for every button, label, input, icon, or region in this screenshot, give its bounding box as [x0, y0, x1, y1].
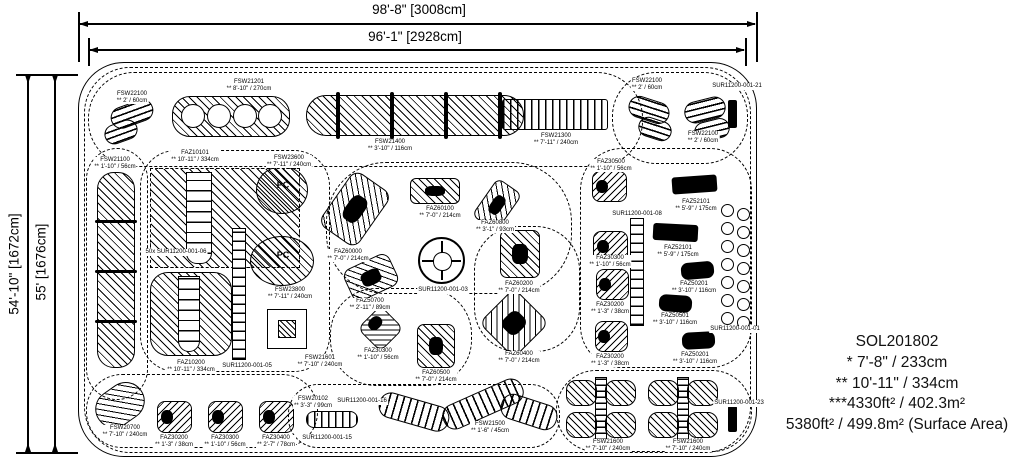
label-faz30400: FAZ30400** 2'-7" / 78cm	[256, 435, 296, 448]
label-faz30200: FAZ30200** 1'-3" / 38cm	[590, 354, 630, 367]
label-faz30300: FAZ30300** 1'-10" / 56cm	[588, 255, 631, 268]
label-50x-sur11200-001-06: 50x SUR11200-001-06	[145, 249, 208, 256]
surface-area-note: 5380ft² / 499.8m² (Surface Area)	[772, 415, 1022, 436]
dim-left-inner-label: 55' [1676cm]	[34, 219, 49, 306]
label-faz60100: FAZ60100** 7'-0" / 214cm	[418, 206, 461, 219]
label-faz30300: FAZ30300** 1'-10" / 56cm	[356, 348, 399, 361]
label-faz30200: FAZ30200** 1'-3" / 38cm	[154, 435, 194, 448]
label-fsw23600: FSW23600** 7'-11" / 240cm	[266, 155, 312, 168]
dim-left-outer-label: 54'-10" [1672cm]	[7, 208, 22, 319]
label-faz50700: FAZ50700** 2'-11" / 89cm	[349, 298, 392, 311]
label-fsw22100: FSW22100** 2' / 60cm	[687, 131, 720, 144]
label-sur11200-001-15: SUR11200-001-15	[301, 435, 353, 442]
playground-plan-drawing: 98'-8" [3008cm] 96'-1" [2928cm] 54'-10" …	[0, 0, 1024, 465]
label-fsw23800: FSW23800** 7'-11" / 240cm	[267, 287, 313, 300]
label-faz50201: FAZ50201** 3'-10" / 116cm	[671, 281, 717, 294]
label-fsw20700: FSW20700** 7'-10" / 240cm	[102, 425, 149, 438]
label-fsw22100: FSW22100** 2' / 60cm	[631, 78, 664, 91]
label-fsw22100: FSW22100** 2' / 60cm	[116, 91, 149, 104]
dim-top-inner-label: 96'-1" [2928cm]	[363, 29, 467, 44]
label-faz30300: FAZ30300** 1'-10" / 56cm	[203, 435, 246, 448]
note-star2: ** 10'-11" / 334cm	[772, 374, 1022, 395]
label-sur11200-001-05: SUR11200-001-05	[221, 363, 273, 370]
label-fsw21201: FSW21201** 8'-10" / 270cm	[226, 79, 273, 92]
label-faz60000: FAZ60000** 7'-0" / 214cm	[326, 249, 369, 262]
label-fsw21300: FSW21300** 7'-11" / 240cm	[533, 133, 579, 146]
label-faz60500: FAZ60500** 7'-0" / 214cm	[414, 370, 457, 383]
label-faz10200: FAZ10200** 10'-11" / 334cm	[166, 360, 216, 373]
label-fsw21500: FSW21500** 1'-6" / 45cm	[470, 421, 510, 434]
label-sur11200-001-01: SUR11200-001-01	[709, 326, 761, 333]
label-faz30500: FAZ30500** 1'-10" / 56cm	[589, 159, 632, 172]
note-star3: ***4330ft² / 402.3m²	[772, 394, 1022, 415]
label-faz52101: FAZ52101** 5'-9" / 175cm	[656, 245, 699, 258]
label-sur11200-001-23: SUR11200-001-23	[713, 400, 765, 407]
note-star1: * 7'-8" / 233cm	[772, 353, 1022, 374]
label-faz60800: FAZ60800** 3'-1" / 93cm	[475, 220, 515, 233]
label-faz50201: FAZ50201** 3'-10" / 116cm	[672, 352, 718, 365]
label-pc: PC	[276, 252, 291, 259]
label-fsw20102: FSW20102** 3'-3" / 99cm	[293, 396, 333, 409]
label-faz52101: FAZ52101** 5'-9" / 175cm	[674, 199, 717, 212]
model-number: SOL201802	[772, 332, 1022, 353]
label-sur11200-001-16: SUR11200-001-16	[336, 398, 388, 405]
label-fsw21600: FSW21600** 7'-10" / 240cm	[665, 439, 712, 452]
label-faz60400: FAZ60400** 7'-0" / 214cm	[497, 351, 540, 364]
label-faz50501: FAZ50501** 3'-10" / 116cm	[652, 313, 698, 326]
label-pc: PC	[276, 182, 291, 189]
label-faz60200: FAZ60200** 7'-0" / 214cm	[497, 281, 540, 294]
label-sur11200-001-08: SUR11200-001-08	[611, 211, 663, 218]
label-fsw21100: FSW21100** 1'-10" / 56cm	[93, 157, 136, 170]
label-fsw21601: FSW21601** 7'-10" / 240cm	[297, 355, 344, 368]
title-block: SOL201802 * 7'-8" / 233cm ** 10'-11" / 3…	[772, 332, 1022, 436]
label-fsw21600: FSW21600** 7'-10" / 240cm	[585, 439, 632, 452]
dim-top-outer-label: 98'-8" [3008cm]	[367, 2, 471, 17]
label-sur11200-001-03: SUR11200-001-03	[417, 287, 469, 294]
label-faz30200: FAZ30200** 1'-3" / 38cm	[590, 302, 630, 315]
label-sur11200-001-21: SUR11200-001-21	[711, 83, 763, 90]
label-fsw21400: FSW21400** 3'-10" / 116cm	[367, 139, 413, 152]
label-faz10101: FAZ10101** 10'-11" / 334cm	[170, 150, 220, 163]
